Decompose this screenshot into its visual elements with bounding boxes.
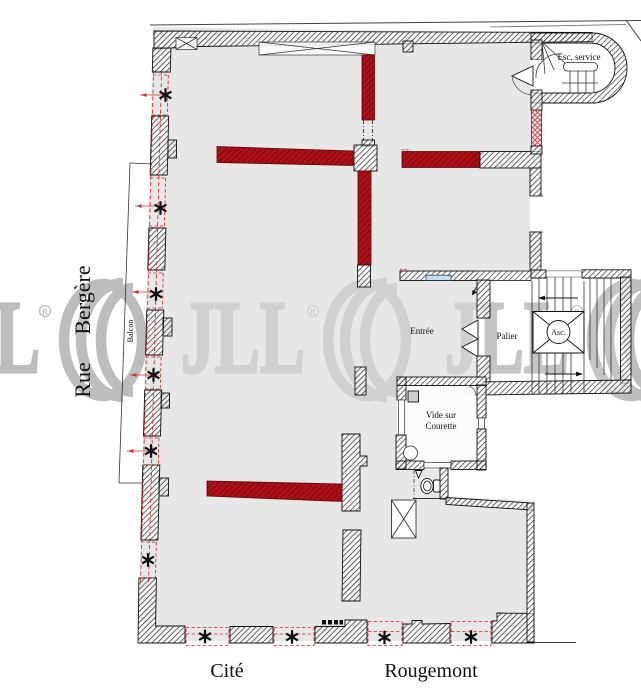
svg-text:Balcon: Balcon [126, 320, 135, 343]
svg-text:Palier: Palier [497, 331, 518, 341]
svg-text:Vide sur: Vide sur [426, 410, 456, 420]
svg-text:JLL: JLL [0, 280, 40, 395]
svg-text:Courette: Courette [426, 421, 457, 431]
svg-text:Bergère: Bergère [70, 265, 95, 334]
svg-text:R: R [42, 308, 48, 317]
svg-text:Rue: Rue [70, 362, 95, 397]
svg-text:Rougemont: Rougemont [384, 660, 478, 682]
svg-text:Entrée: Entrée [410, 326, 433, 336]
svg-text:Esc. service: Esc. service [558, 52, 601, 62]
svg-text:Cité: Cité [210, 660, 243, 682]
svg-text:Asc.: Asc. [551, 328, 565, 337]
